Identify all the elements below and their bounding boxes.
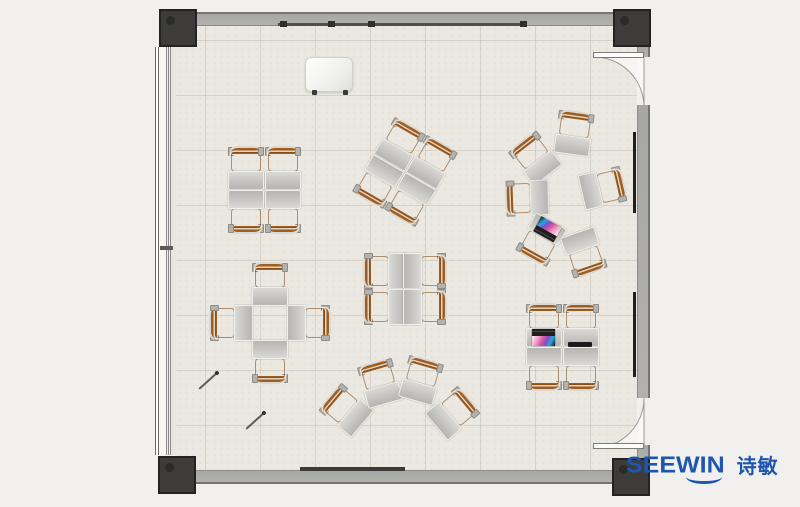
chair-seat <box>566 365 596 385</box>
chair-seat <box>231 208 261 228</box>
laptop-keyboard <box>532 329 555 336</box>
chair-seat <box>231 152 261 172</box>
desk-top-view <box>403 253 422 289</box>
open-laptop-icon <box>532 329 555 346</box>
chair-seat <box>255 358 285 378</box>
brand-logo: SEEWIN 诗敏 <box>626 450 779 480</box>
desk-chair-unit <box>363 289 407 325</box>
desk-top-view <box>265 190 301 209</box>
desk-top-view <box>234 305 253 341</box>
desk-chair-unit <box>526 347 562 391</box>
desk-chair-unit <box>398 354 445 406</box>
chair-top-view <box>230 208 262 234</box>
desk-top-view <box>287 305 306 341</box>
desk-top-view <box>228 171 264 190</box>
desk-top-view <box>563 347 599 366</box>
chair-top-view <box>267 146 299 172</box>
chair-top-view <box>528 303 560 329</box>
chair-seat <box>529 365 559 385</box>
chair-top-view <box>254 262 286 288</box>
desk-chair-unit <box>504 179 549 217</box>
desk-chair-unit <box>363 253 407 289</box>
chair-top-view <box>267 208 299 234</box>
chair-top-view <box>421 255 447 287</box>
desk-top-view <box>265 171 301 190</box>
chair-seat <box>268 208 298 228</box>
chair-top-view <box>421 291 447 323</box>
chair-top-view <box>305 307 331 339</box>
chair-top-view <box>363 291 389 323</box>
chair-top-view <box>504 182 531 215</box>
chair-top-view <box>230 146 262 172</box>
desk-chair-unit <box>560 226 608 279</box>
furniture-layer <box>0 0 800 507</box>
desk-chair-unit <box>563 347 599 391</box>
laptop-screen <box>532 336 555 346</box>
desk-chair-unit <box>287 305 331 341</box>
chair-seat <box>305 308 325 338</box>
desk-chair-unit <box>526 303 562 347</box>
desk-chair-unit <box>252 340 288 384</box>
chair-top-view <box>254 358 286 384</box>
desk-chair-unit <box>228 190 264 234</box>
desk-chair-unit <box>515 212 568 268</box>
brand-logo-cjk: 诗敏 <box>737 450 779 479</box>
chair-seat <box>421 292 441 322</box>
logo-swoosh-icon <box>686 470 722 484</box>
chair-top-view <box>528 365 560 391</box>
floorplan-canvas: SEEWIN 诗敏 <box>0 0 800 507</box>
desk-top-view <box>403 289 422 325</box>
chair-top-view <box>565 365 597 391</box>
chair-top-view <box>209 307 235 339</box>
desk-chair-unit <box>228 146 264 190</box>
chair-seat <box>369 256 389 286</box>
desk-top-view <box>252 340 288 359</box>
chair-seat <box>268 152 298 172</box>
chair-seat <box>566 309 596 329</box>
desk-top-view <box>228 190 264 209</box>
chair-top-view <box>565 303 597 329</box>
desk-chair-unit <box>403 253 447 289</box>
chair-seat <box>529 309 559 329</box>
desk-top-view <box>252 287 288 306</box>
chair-top-view <box>363 255 389 287</box>
desk-top-view <box>553 133 591 157</box>
desk-chair-unit <box>209 305 253 341</box>
chair-seat <box>255 268 285 288</box>
desk-chair-unit <box>578 166 629 211</box>
chair-seat <box>510 183 531 214</box>
chair-seat <box>369 292 389 322</box>
chair-seat <box>421 256 441 286</box>
desk-chair-unit <box>553 109 595 158</box>
desk-chair-unit <box>265 146 301 190</box>
desk-chair-unit <box>265 190 301 234</box>
desk-chair-unit <box>563 303 599 347</box>
desk-chair-unit <box>252 262 288 306</box>
chair-seat <box>215 308 235 338</box>
desk-chair-unit <box>403 289 447 325</box>
desk-top-view <box>526 347 562 366</box>
desk-top-view <box>529 179 549 216</box>
